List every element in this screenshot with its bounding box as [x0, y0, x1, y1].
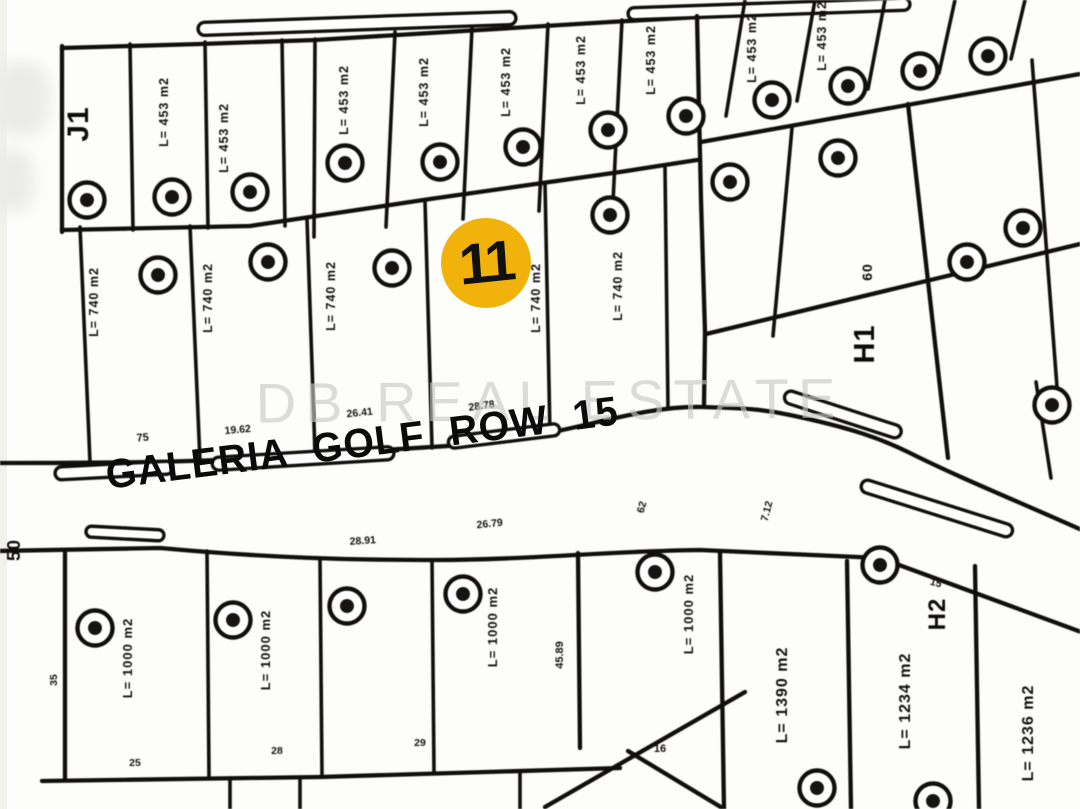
lot-number-marker: [863, 548, 898, 583]
parcel-line: [847, 561, 851, 809]
dimension-label: 7.12: [759, 500, 776, 523]
district-label: H2: [924, 598, 951, 631]
lot-number-marker: [591, 113, 626, 148]
parcel-line: [939, 0, 955, 73]
road-curb-segment: [860, 479, 1015, 539]
road-junction-line: [628, 751, 724, 809]
dimension-label: 29: [414, 737, 426, 749]
parcel-line: [1011, 0, 1025, 59]
parcel-line: [207, 551, 209, 777]
lot-number-marker: [251, 245, 286, 280]
listing-pin-11[interactable]: 11: [441, 218, 531, 308]
lot-area-label: L= 453 m2: [574, 35, 588, 105]
dimension-label: 25: [129, 757, 141, 769]
lot-area-label: L= 740 m2: [87, 267, 101, 337]
lot-number-marker: [669, 99, 704, 134]
lot-area-label: L= 740 m2: [201, 263, 215, 333]
dimension-label: 35: [48, 674, 60, 686]
lot-area-label: L= 740 m2: [529, 263, 543, 333]
district-label: 50: [4, 539, 24, 561]
lot-area-label: L= 740 m2: [611, 251, 625, 321]
lot-number-marker: [971, 39, 1006, 74]
parcel-line: [773, 128, 792, 336]
district-label: H1: [849, 324, 881, 363]
parcel-line: [130, 44, 133, 230]
dimension-label: 16: [654, 743, 666, 755]
lot-number-marker: [233, 175, 268, 210]
lot-number-marker: [916, 784, 951, 809]
district-label: J1: [62, 106, 95, 141]
parcel-line: [868, 0, 885, 89]
lot-number-marker: [1035, 388, 1070, 423]
lot-number-marker: [328, 146, 363, 181]
dimension-label: 28.91: [349, 534, 376, 548]
dimension-label: 75: [136, 432, 149, 445]
plat-map: L= 453 m2L= 453 m2L= 453 m2L= 453 m2L= 4…: [0, 0, 1080, 809]
parcel-line: [720, 553, 724, 809]
listing-pin-number: 11: [457, 227, 516, 299]
dimension-label: 62: [635, 500, 650, 515]
parcel-line: [205, 42, 208, 228]
lot-area-label: L= 453 m2: [337, 65, 351, 135]
lot-number-marker: [950, 245, 985, 280]
road-edge-lower: [0, 548, 1080, 633]
lot-number-marker: [800, 771, 835, 806]
lot-area-label: L= 453 m2: [815, 1, 829, 71]
lot-area-label: L= 1390 m2: [774, 647, 791, 744]
lot-area-label: L= 740 m2: [324, 261, 338, 331]
lot-number-marker: [446, 577, 481, 612]
lot-area-label: L= 453 m2: [217, 103, 231, 173]
parcel-line: [432, 560, 434, 773]
lot-number-marker: [821, 141, 856, 176]
lot-number-marker: [141, 258, 176, 293]
road-curb-segment: [86, 526, 164, 541]
lot-area-label: L= 453 m2: [499, 47, 513, 117]
lot-area-label: L= 453 m2: [157, 77, 171, 147]
lot-number-marker: [638, 555, 673, 590]
parcel-line: [314, 39, 315, 237]
lot-area-label: L= 1236 m2: [1020, 685, 1037, 782]
parcel-line: [190, 226, 200, 461]
lot-area-label: L= 453 m2: [417, 57, 431, 127]
lot-area-label: L= 453 m2: [644, 25, 658, 95]
lot-number-marker: [593, 198, 628, 233]
parcel-line: [320, 559, 322, 777]
road-curb-segment: [628, 0, 910, 20]
lot-area-label: L= 1000 m2: [485, 587, 500, 667]
road-junction-line: [545, 692, 745, 807]
dimension-label: 28: [271, 745, 283, 757]
section-boundary: [697, 16, 705, 406]
parcel-line: [42, 768, 620, 781]
lot-number-marker: [755, 83, 790, 118]
lot-area-label: L= 1000 m2: [258, 610, 273, 690]
parcel-line: [706, 244, 1080, 334]
parcel-line: [578, 553, 580, 748]
parcel-line: [386, 32, 395, 227]
lot-number-marker: [330, 589, 365, 624]
parcel-line: [80, 227, 90, 462]
lot-number-marker: [155, 180, 190, 215]
lot-number-marker: [78, 611, 113, 646]
lot-number-marker: [903, 54, 938, 89]
dimension-label: 26.79: [476, 517, 504, 532]
parcel-line: [975, 566, 979, 809]
parcel-line: [282, 40, 285, 226]
lot-number-marker: [713, 165, 748, 200]
lot-number-marker: [70, 183, 105, 218]
lot-area-label: L= 1000 m2: [120, 618, 135, 698]
dimension-label: 15: [929, 576, 944, 591]
district-label: 60: [859, 263, 875, 281]
lot-area-label: L= 1234 m2: [897, 653, 914, 750]
lot-number-marker: [375, 251, 410, 286]
lot-area-label: L= 1000 m2: [681, 574, 696, 654]
lot-number-marker: [423, 145, 458, 180]
lot-number-marker: [216, 603, 251, 638]
lot-area-label: L= 453 m2: [745, 13, 759, 83]
dimension-label: 45.89: [554, 641, 566, 669]
lot-number-marker: [1006, 211, 1041, 246]
lot-number-marker: [831, 69, 866, 104]
lot-number-marker: [506, 130, 541, 165]
parcel-line: [463, 28, 472, 219]
